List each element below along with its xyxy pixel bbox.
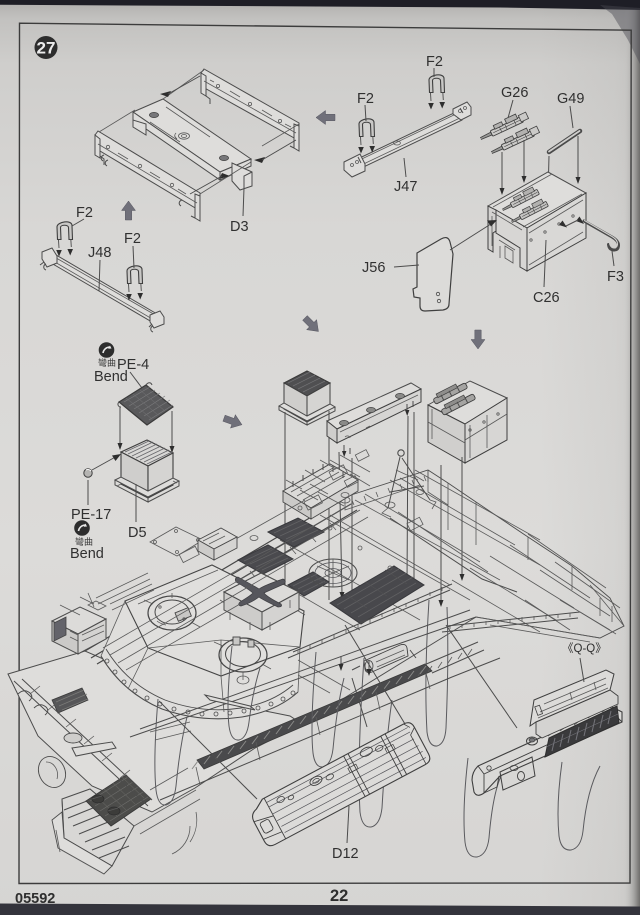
svg-text:彎曲: 彎曲 [98,357,116,368]
svg-text:J48: J48 [88,245,111,261]
svg-text:27: 27 [37,39,56,58]
svg-text:F2: F2 [426,54,443,70]
svg-text:J47: J47 [394,179,417,195]
svg-text:《Q-Q》: 《Q-Q》 [562,642,607,655]
svg-text:D5: D5 [128,525,147,541]
svg-text:F2: F2 [357,91,374,107]
svg-text:D12: D12 [332,846,359,862]
svg-text:Bend: Bend [70,546,104,562]
svg-text:05592: 05592 [15,891,55,907]
svg-text:G49: G49 [557,91,584,107]
svg-text:J56: J56 [362,260,385,276]
svg-text:F2: F2 [124,231,141,247]
svg-text:F3: F3 [607,269,624,285]
svg-text:D3: D3 [230,219,249,235]
svg-text:PE-17: PE-17 [71,507,111,523]
svg-text:22: 22 [330,887,348,905]
svg-text:Bend: Bend [94,369,128,385]
svg-text:G26: G26 [501,85,528,101]
svg-text:F2: F2 [76,205,93,221]
svg-text:C26: C26 [533,290,560,306]
